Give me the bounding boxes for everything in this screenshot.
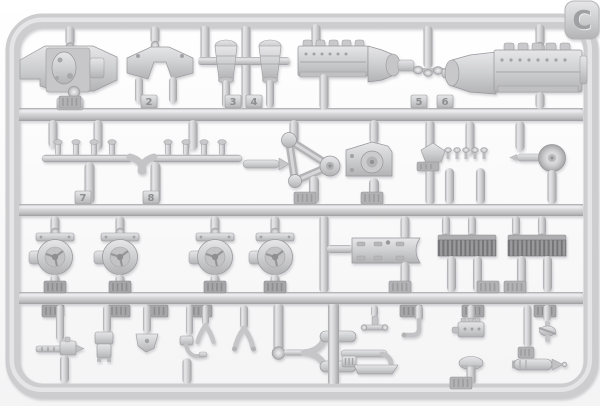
tag-8-number: 8 [148,193,155,204]
part-number-tag [361,192,383,204]
part-number-tag [504,281,526,293]
tag-6-number: 6 [442,97,449,108]
part-number-tag-3: 3 [225,95,241,108]
part-number-tag [294,192,316,204]
photo-background: 2 3 4 5 6 7 [0,0,600,406]
part-number-tag-8: 8 [143,191,159,204]
part-number-tag-6: 6 [437,95,453,108]
runner-row-3 [19,292,583,304]
part-number-tag-5: 5 [411,95,427,108]
sprue-letter: C [572,6,591,36]
tag-7-number: 7 [80,193,87,204]
part-number-tag [204,281,226,293]
part-number-tag-4: 4 [246,95,262,108]
rod-part [243,158,289,170]
runner-row-2 [19,204,583,216]
part-number-tag [109,281,131,293]
sprue-label-plaque: C C [565,1,599,39]
tag-2-number: 2 [146,97,153,108]
part-number-tag [44,281,66,293]
part-number-tag [59,96,81,108]
part-number-tag [389,281,411,293]
part-number-tag [450,377,472,389]
part-number-tag [108,305,130,317]
runner-vertical-thick [328,304,339,384]
tag-4-number: 4 [251,97,258,108]
part-number-tag-2: 2 [141,95,157,108]
part-number-tag [477,281,499,293]
tag-5-number: 5 [416,97,423,108]
tag-3-number: 3 [230,97,237,108]
part-number-tag-7: 7 [75,191,91,204]
runner-row-1 [19,108,583,121]
sprue-photo: 2 3 4 5 6 7 [0,0,600,406]
part-number-tag [264,281,286,293]
